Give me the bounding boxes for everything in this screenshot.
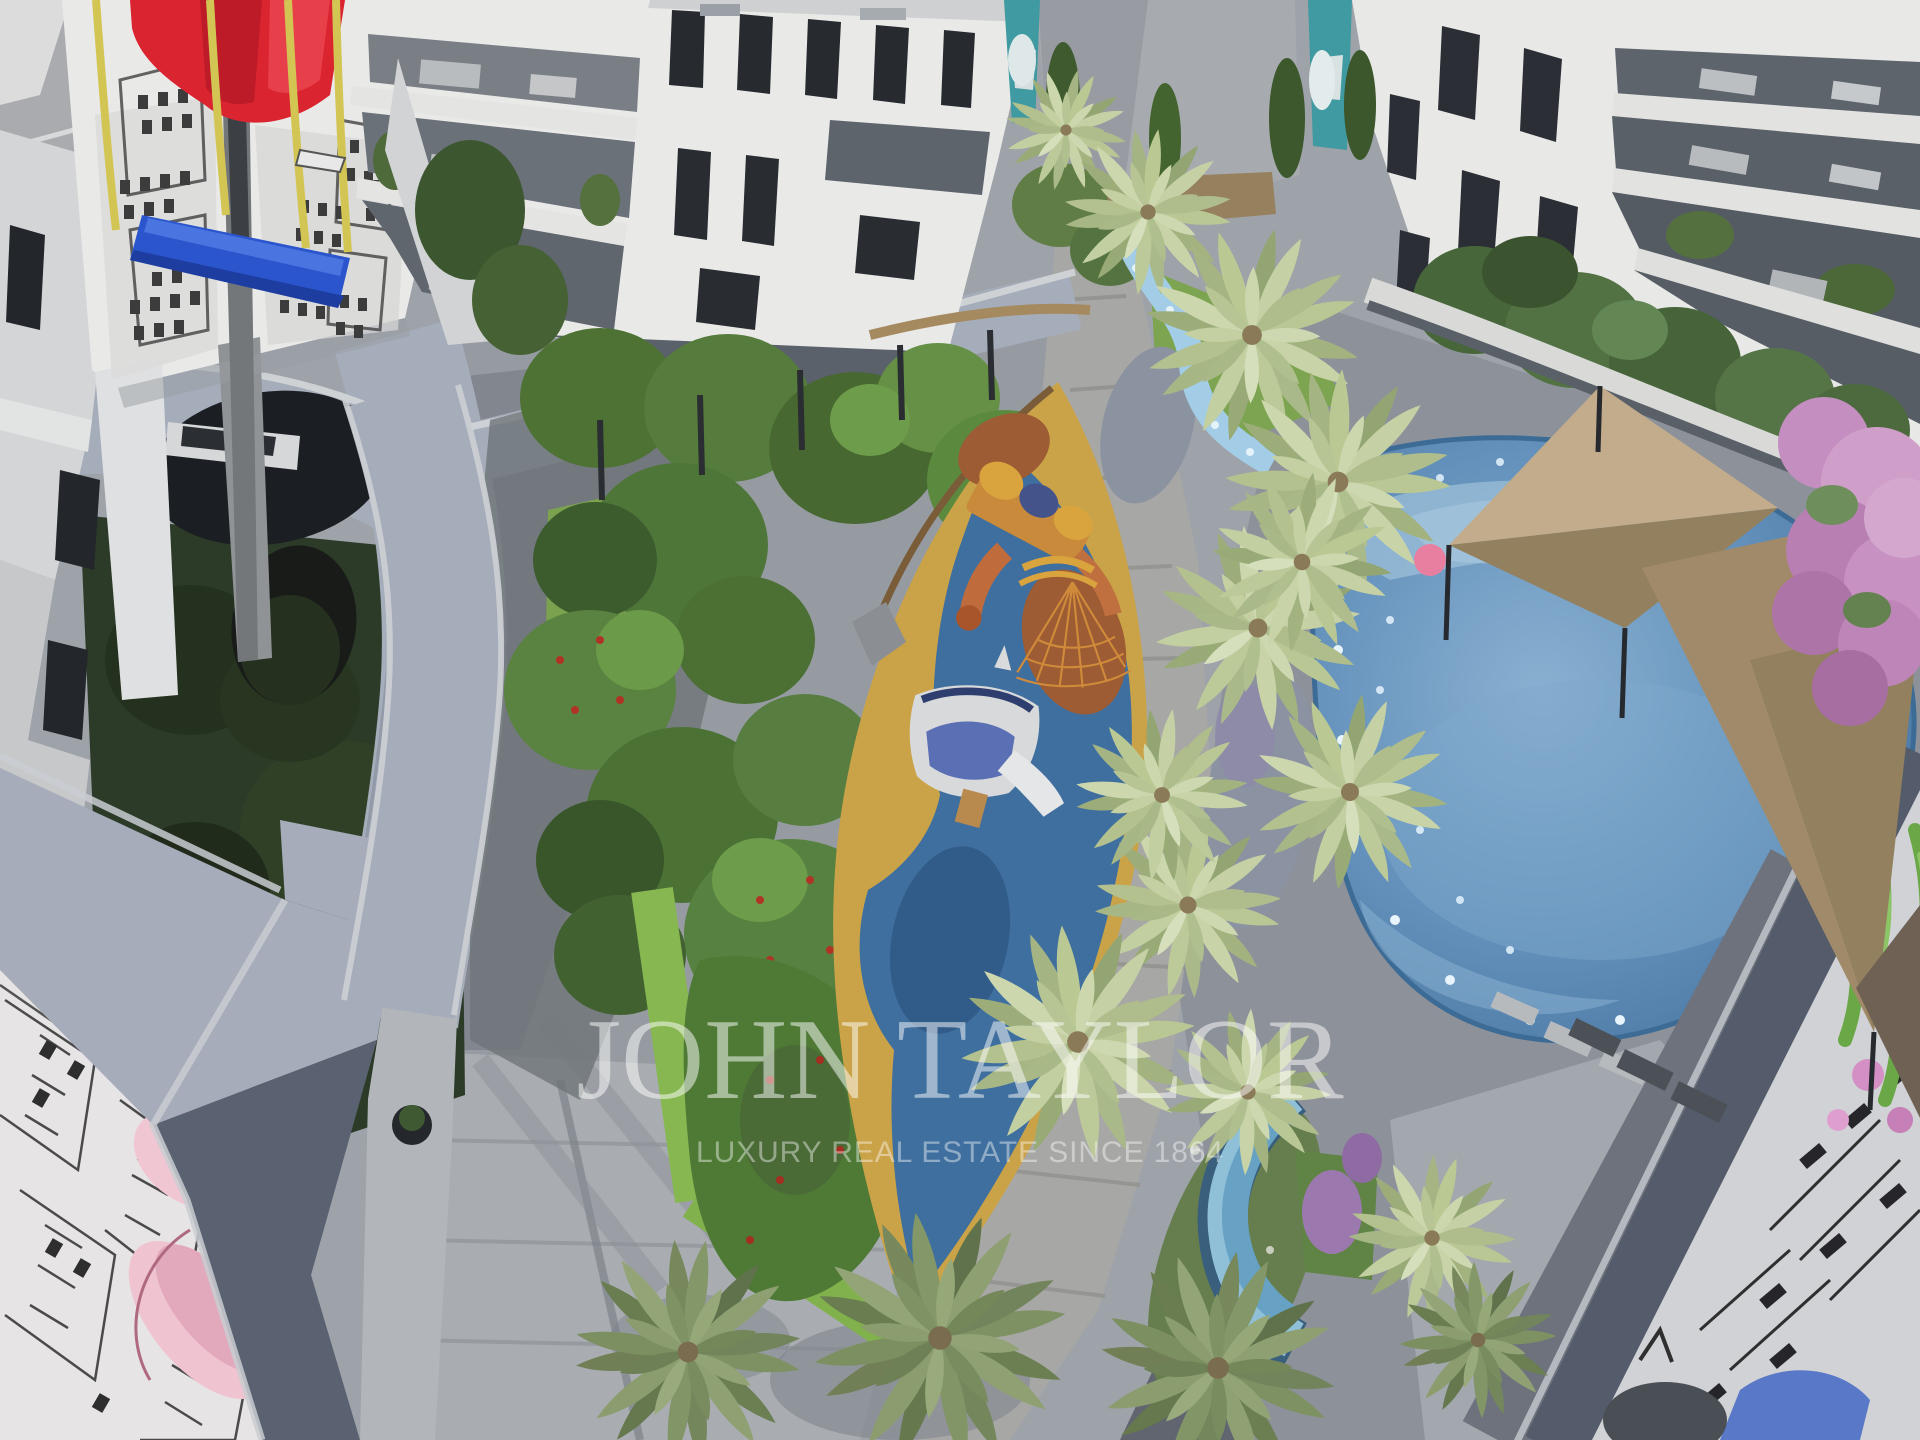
svg-text:LUXURY REAL ESTATE SINCE 1864: LUXURY REAL ESTATE SINCE 1864 <box>696 1136 1224 1169</box>
svg-text:JOHN TAYLOR: JOHN TAYLOR <box>576 996 1343 1123</box>
